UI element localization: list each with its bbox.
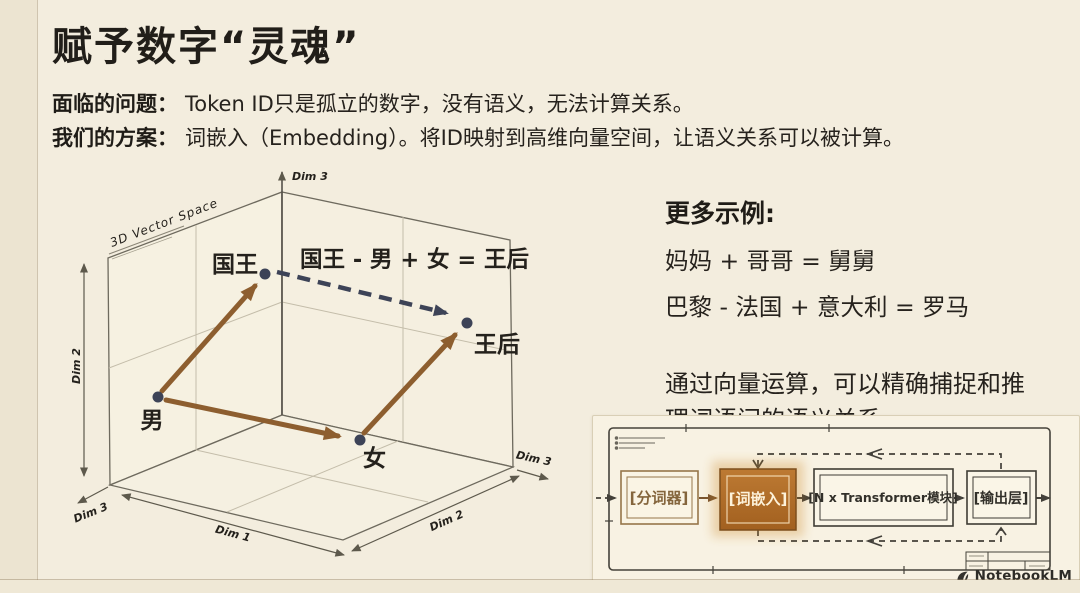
solution-line: 我们的方案：词嵌入（Embedding）。将ID映射到高维向量空间，让语义关系可… — [52, 122, 904, 152]
page-edge-line — [37, 0, 38, 581]
point-label-woman: 女 — [363, 445, 386, 472]
vector-equation: 国王 - 男 + 女 = 王后 — [300, 246, 529, 273]
problem-text: Token ID只是孤立的数字，没有语义，无法计算关系。 — [185, 92, 694, 116]
point-label-queen: 王后 — [474, 332, 520, 358]
box-embedding: [词嵌入] — [712, 461, 804, 537]
point-label-man: 男 — [141, 408, 164, 434]
slide: 赋予数字“灵魂” 面临的问题：Token ID只是孤立的数字，没有语义，无法计算… — [0, 0, 1080, 593]
legend-lines — [615, 437, 665, 449]
problem-label: 面临的问题： — [52, 92, 178, 116]
box-embedding-label: [词嵌入] — [729, 490, 788, 508]
solution-label: 我们的方案： — [52, 126, 178, 150]
box-output-label: [输出层] — [974, 490, 1029, 507]
pipeline-panel: [分词器] [词嵌入] [N x Transformer模块] [输出层] — [592, 415, 1080, 583]
page-bottom-band — [0, 580, 1080, 593]
box-tokenizer-label: [分词器] — [630, 489, 689, 507]
point-label-king: 国王 — [212, 252, 258, 278]
page-left-margin — [0, 0, 37, 593]
pipeline-diagram: [分词器] [词嵌入] [N x Transformer模块] [输出层] — [593, 416, 1079, 582]
box-transformer: [N x Transformer模块] — [808, 469, 958, 526]
problem-line: 面临的问题：Token ID只是孤立的数字，没有语义，无法计算关系。 — [52, 88, 694, 118]
axis-label-top: Dim 3 — [292, 170, 328, 183]
axis-label-bottom-left: Dim 3 — [72, 500, 110, 526]
axis-label-dim1: Dim 1 — [214, 523, 252, 545]
example-item: 妈妈 + 哥哥 = 舅舅 — [665, 242, 1065, 276]
vector-space-diagram: Dim 3 Dim 2 Dim 3 Dim 1 Dim 2 Dim 3 3D V… — [55, 158, 585, 590]
axis-label-right: Dim 3 — [515, 448, 553, 468]
page-title: 赋予数字“灵魂” — [52, 14, 361, 72]
example-item: 巴黎 - 法国 + 意大利 = 罗马 — [665, 288, 1065, 322]
examples-block: 更多示例: 妈妈 + 哥哥 = 舅舅 巴黎 - 法国 + 意大利 = 罗马 通过… — [665, 194, 1065, 439]
box-transformer-label: [N x Transformer模块] — [808, 490, 958, 505]
solution-text: 词嵌入（Embedding）。将ID映射到高维向量空间，让语义关系可以被计算。 — [185, 126, 904, 150]
axis-label-dim2-bottom: Dim 2 — [428, 507, 466, 534]
examples-heading: 更多示例: — [665, 194, 1065, 230]
axis-label-left: Dim 2 — [70, 348, 83, 384]
box-output: [输出层] — [967, 471, 1036, 524]
box-tokenizer: [分词器] — [621, 471, 698, 524]
